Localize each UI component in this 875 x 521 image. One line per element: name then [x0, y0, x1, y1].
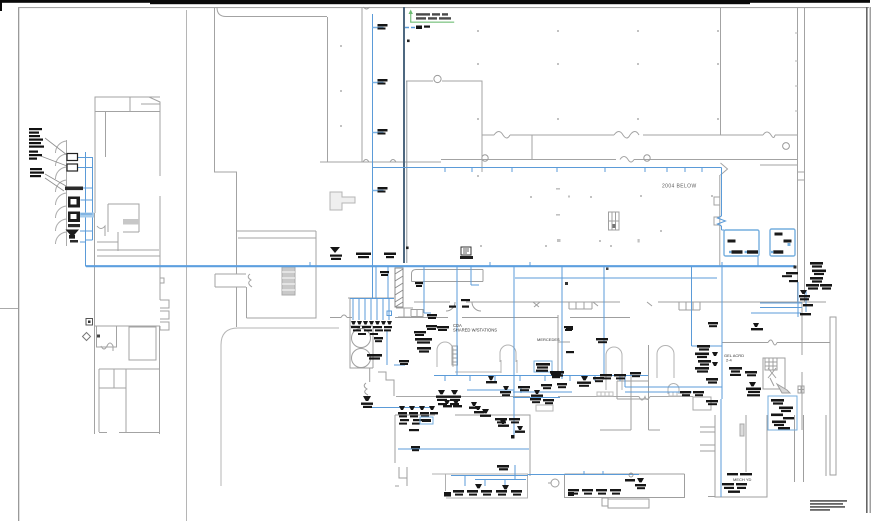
- svg-text:SHARED W/STATIONS: SHARED W/STATIONS: [453, 328, 497, 333]
- svg-text:2-4: 2-4: [726, 358, 733, 363]
- svg-text:MERCEDES: MERCEDES: [537, 337, 560, 342]
- svg-text:MECH YD: MECH YD: [733, 477, 751, 482]
- svg-text:2004 BELOW: 2004 BELOW: [662, 184, 697, 190]
